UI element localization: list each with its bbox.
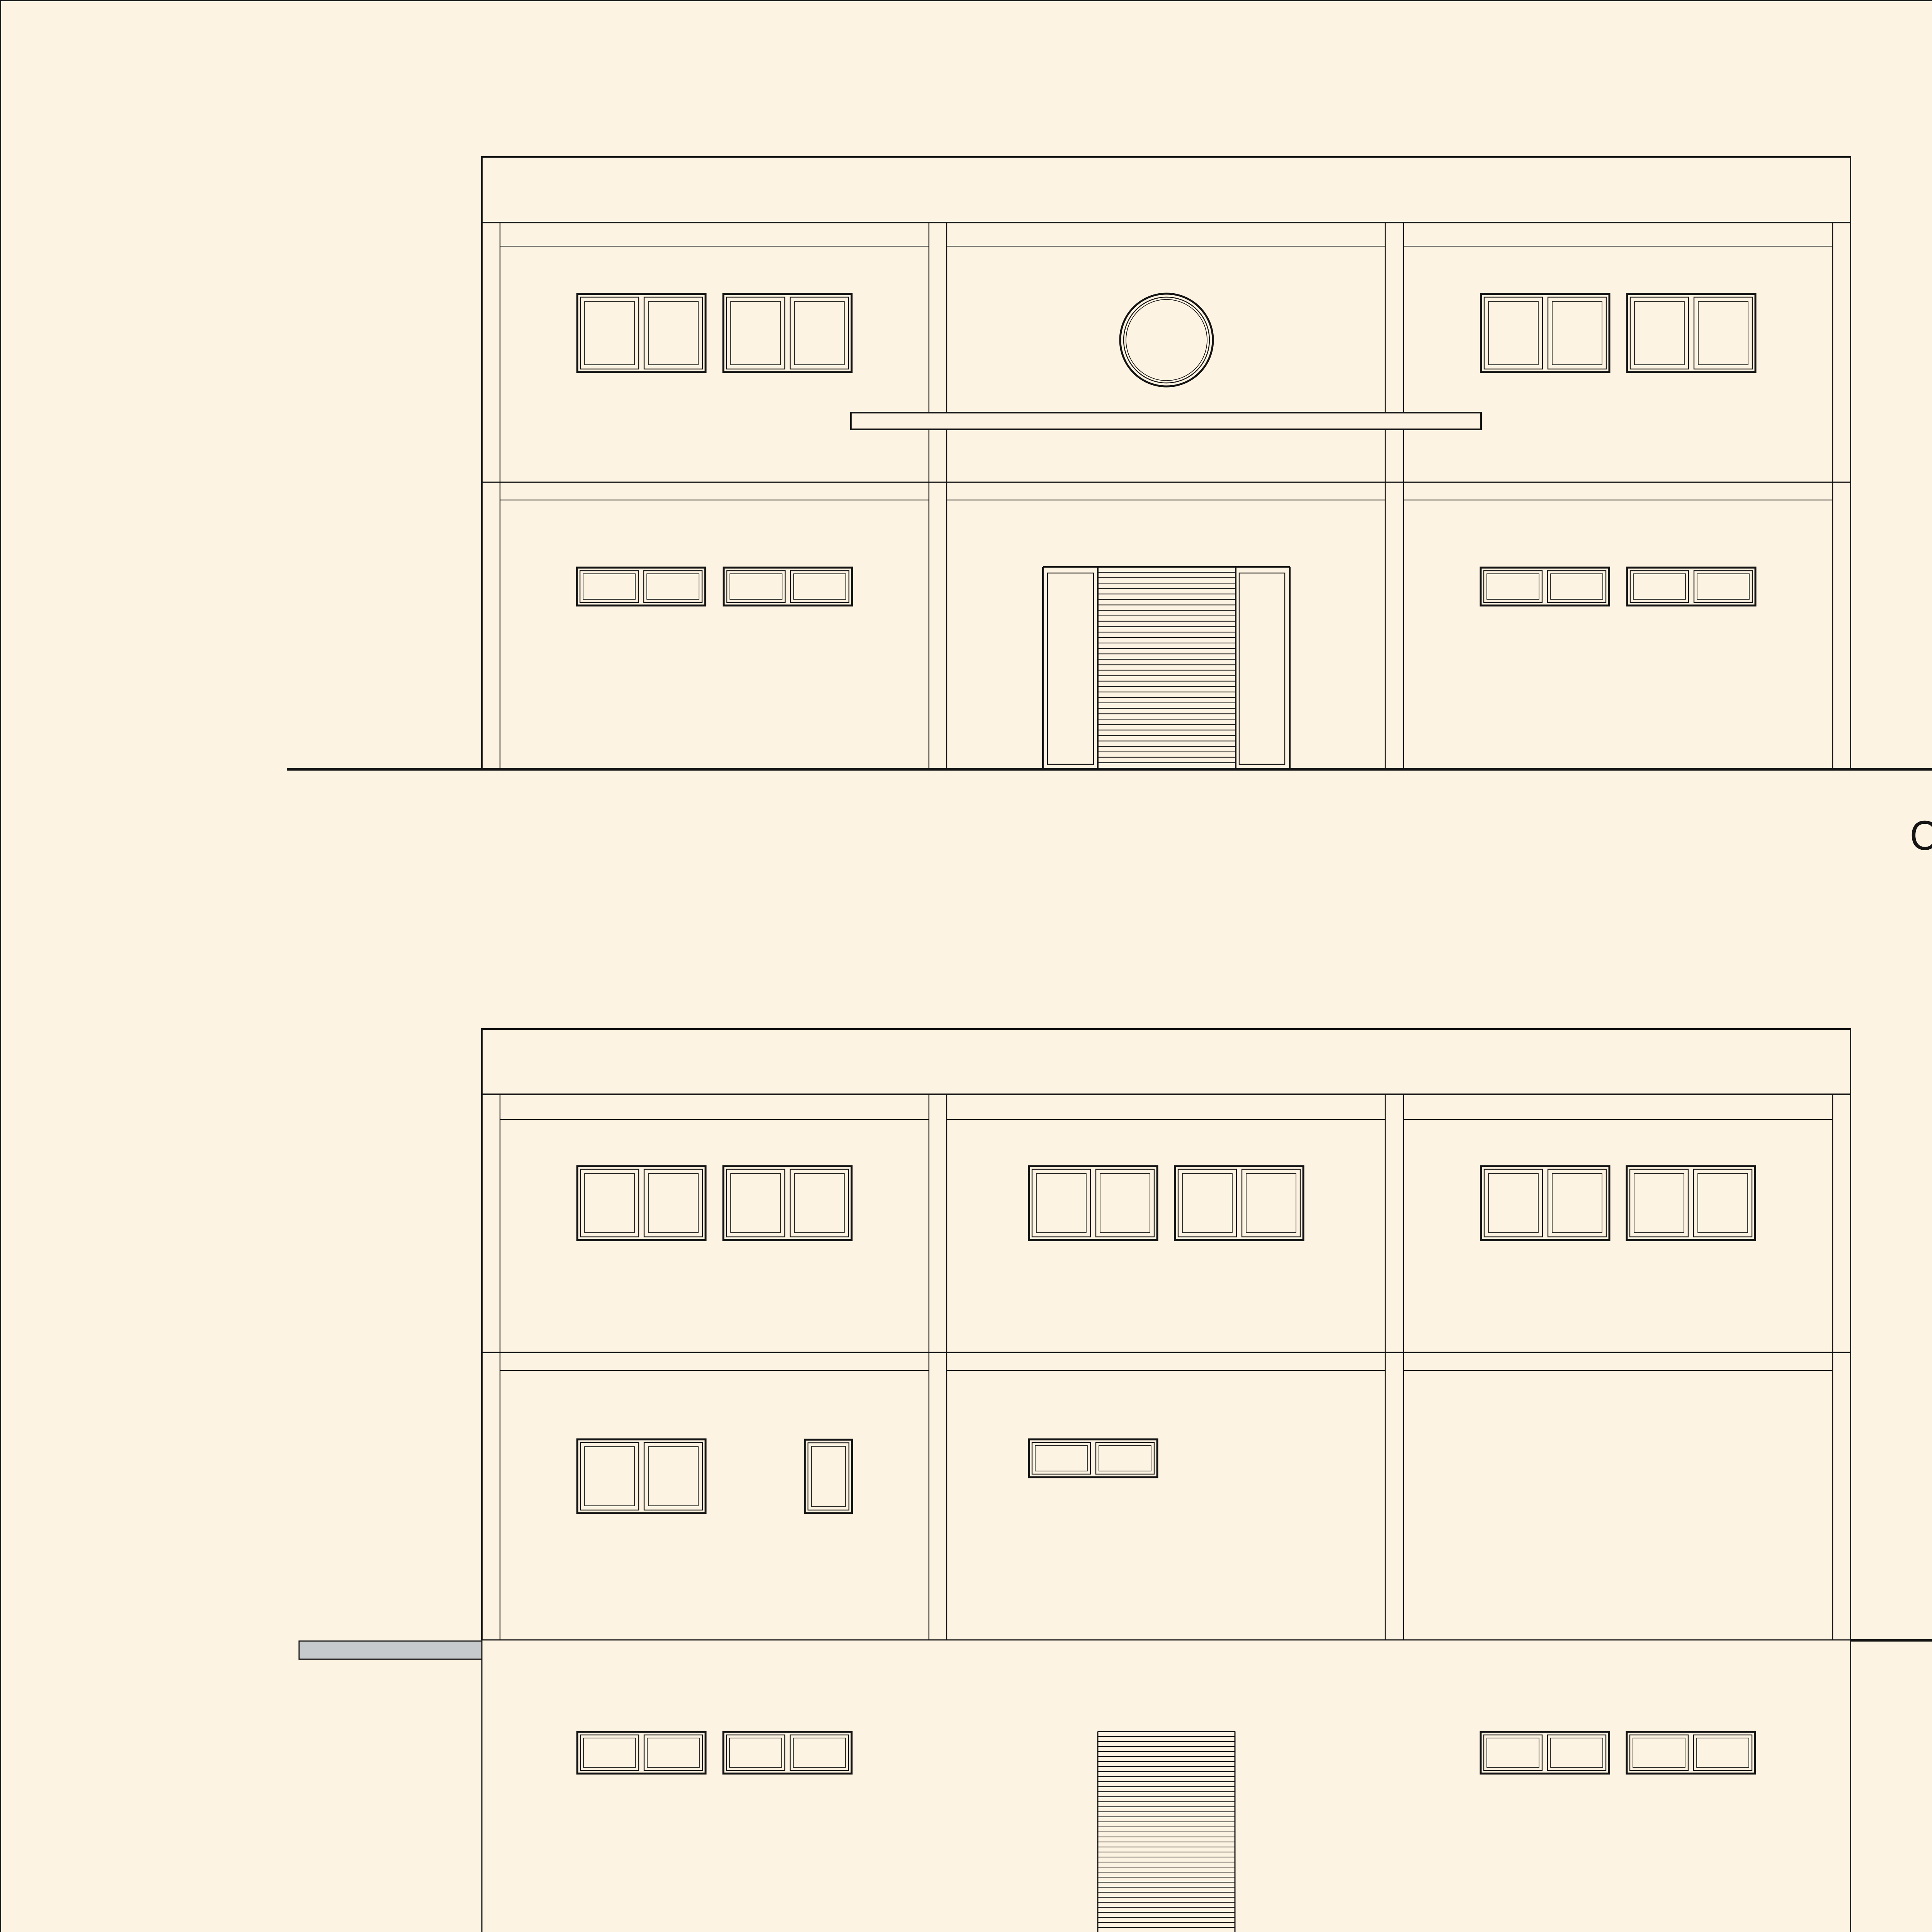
svg-text:ΟΨΗ Α: ΟΨΗ Α	[1910, 812, 1932, 859]
